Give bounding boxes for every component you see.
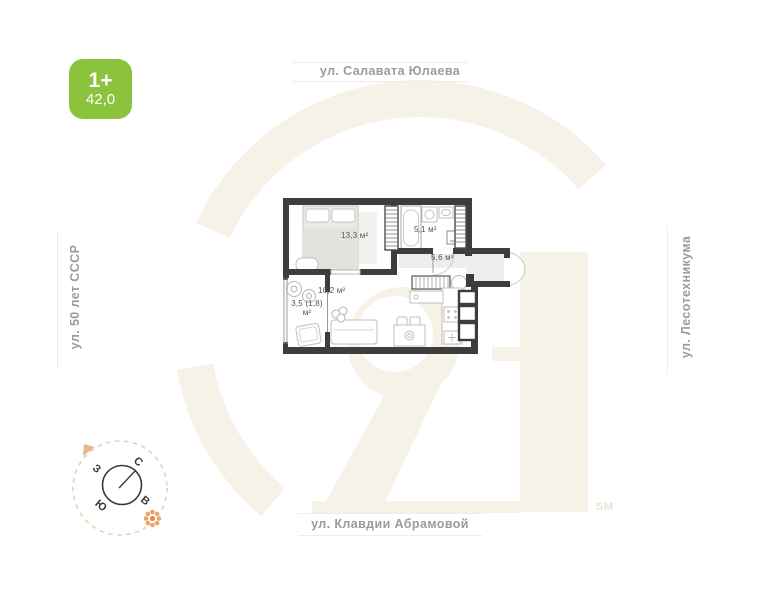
hall-wardrobe xyxy=(412,276,450,289)
sun-icon xyxy=(144,510,162,528)
vent-shaft-bedroom xyxy=(385,206,398,250)
duct-boxes xyxy=(459,291,476,340)
washing-machine xyxy=(422,207,437,222)
kitchen-island xyxy=(410,291,443,303)
bathroom-sink xyxy=(439,207,453,218)
apartment-badge: 1+ 42,0 xyxy=(69,59,132,119)
hallway-area-label: 5,6 м² xyxy=(431,253,454,262)
balcony-area-line1: 3,5 (1,8) xyxy=(285,299,329,308)
street-label-right: ул. Лесотехникума xyxy=(679,236,693,358)
watermark-sm-label: SM xyxy=(596,501,614,513)
brand-21-watermark xyxy=(195,99,592,513)
street-label-top: ул. Салавата Юлаева xyxy=(290,64,490,78)
balcony-area-label: 3,5 (1,8) м² xyxy=(285,299,329,317)
vent-shaft-bathroom xyxy=(455,206,466,248)
floorplan-page: 1+ 42,0 ул. Салавата Юлаева ул. Клавдии … xyxy=(0,0,765,600)
street-label-left: ул. 50 лет СССР xyxy=(68,245,82,350)
dining-table xyxy=(394,317,425,346)
badge-rooms-count: 1+ xyxy=(89,69,113,93)
badge-area-value: 42,0 xyxy=(86,92,115,109)
bedroom-area-label: 13,3 м² xyxy=(341,231,368,240)
street-label-bottom: ул. Клавдии Абрамовой xyxy=(290,517,490,531)
compass-rose xyxy=(73,441,167,535)
living-kitchen-area-label: 16,2 м² xyxy=(318,286,345,295)
bathroom-area-label: 5,1 м² xyxy=(414,225,437,234)
balcony-armchair xyxy=(295,323,321,347)
sofa xyxy=(331,320,377,344)
bedroom-door xyxy=(331,270,360,274)
balcony-area-line2: м² xyxy=(285,308,329,317)
floor-plan xyxy=(283,198,525,354)
